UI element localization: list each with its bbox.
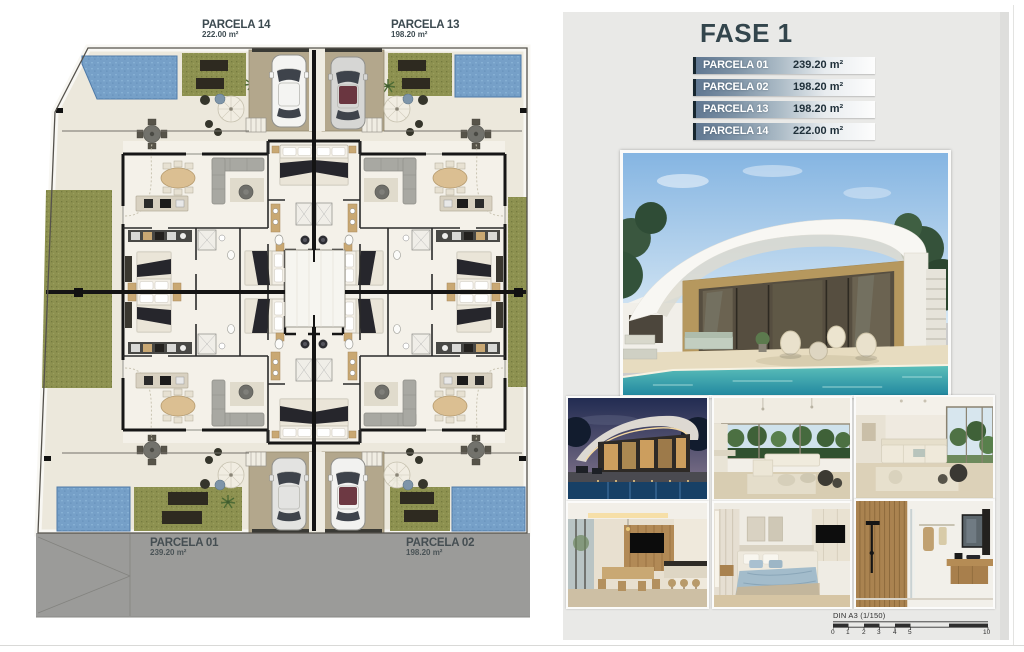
scale-tick: 4 <box>893 629 897 636</box>
parcela-13-area: 198.20 m² <box>391 31 459 40</box>
thumb-photo-exterior-night <box>566 396 709 501</box>
parcela-14-area: 222.00 m² <box>202 31 270 40</box>
label-parcela-14: PARCELA 14 222.00 m² <box>202 19 270 40</box>
row-parcela-area: 198.20 m² <box>793 81 843 93</box>
thumb-photo-living-room <box>854 395 995 500</box>
table-row: PARCELA 02 198.20 m² <box>693 79 875 96</box>
table-row: PARCELA 13 198.20 m² <box>693 101 875 118</box>
row-parcela-area: 198.20 m² <box>793 103 843 115</box>
parcela-01-area: 239.20 m² <box>150 549 218 558</box>
scale-bar-label: DIN A3 (1/150) <box>833 611 885 620</box>
row-parcela-name: PARCELA 14 <box>703 125 768 137</box>
parcela-02-area: 198.20 m² <box>406 549 474 558</box>
table-row: PARCELA 14 222.00 m² <box>693 123 875 140</box>
page-right-edge <box>1013 5 1014 645</box>
row-parcela-area: 222.00 m² <box>793 125 843 137</box>
phase-title: FASE 1 <box>700 18 793 49</box>
scale-tick: 2 <box>862 629 866 636</box>
label-parcela-13: PARCELA 13 198.20 m² <box>391 19 459 40</box>
floor-plan-svg <box>0 0 560 652</box>
scale-bar-ticks: 0 1 2 3 4 5 10 <box>833 629 1003 639</box>
label-parcela-01: PARCELA 01 239.20 m² <box>150 537 218 558</box>
scale-tick: 5 <box>908 629 912 636</box>
row-parcela-name: PARCELA 13 <box>703 103 768 115</box>
table-row: PARCELA 01 239.20 m² <box>693 57 875 74</box>
thumb-photo-kitchen-dining <box>566 501 709 609</box>
plan-sheet-page: { "floor_plan": { "top_labels": [ {"name… <box>0 0 1024 652</box>
panel-edge-band <box>1000 12 1009 640</box>
row-parcela-name: PARCELA 02 <box>703 81 768 93</box>
thumb-photo-bedroom <box>712 501 852 609</box>
hero-photo-villa-exterior <box>620 150 951 398</box>
row-parcela-area: 239.20 m² <box>793 59 843 71</box>
thumb-photo-bathroom <box>854 499 995 609</box>
scale-tick: 1 <box>846 629 850 636</box>
scale-tick: 10 <box>983 629 990 636</box>
scale-tick: 3 <box>877 629 881 636</box>
scale-tick: 0 <box>831 629 835 636</box>
thumb-photo-living-terrace <box>712 396 852 501</box>
page-bottom-edge <box>0 645 1024 646</box>
label-parcela-02: PARCELA 02 198.20 m² <box>406 537 474 558</box>
row-parcela-name: PARCELA 01 <box>703 59 768 71</box>
